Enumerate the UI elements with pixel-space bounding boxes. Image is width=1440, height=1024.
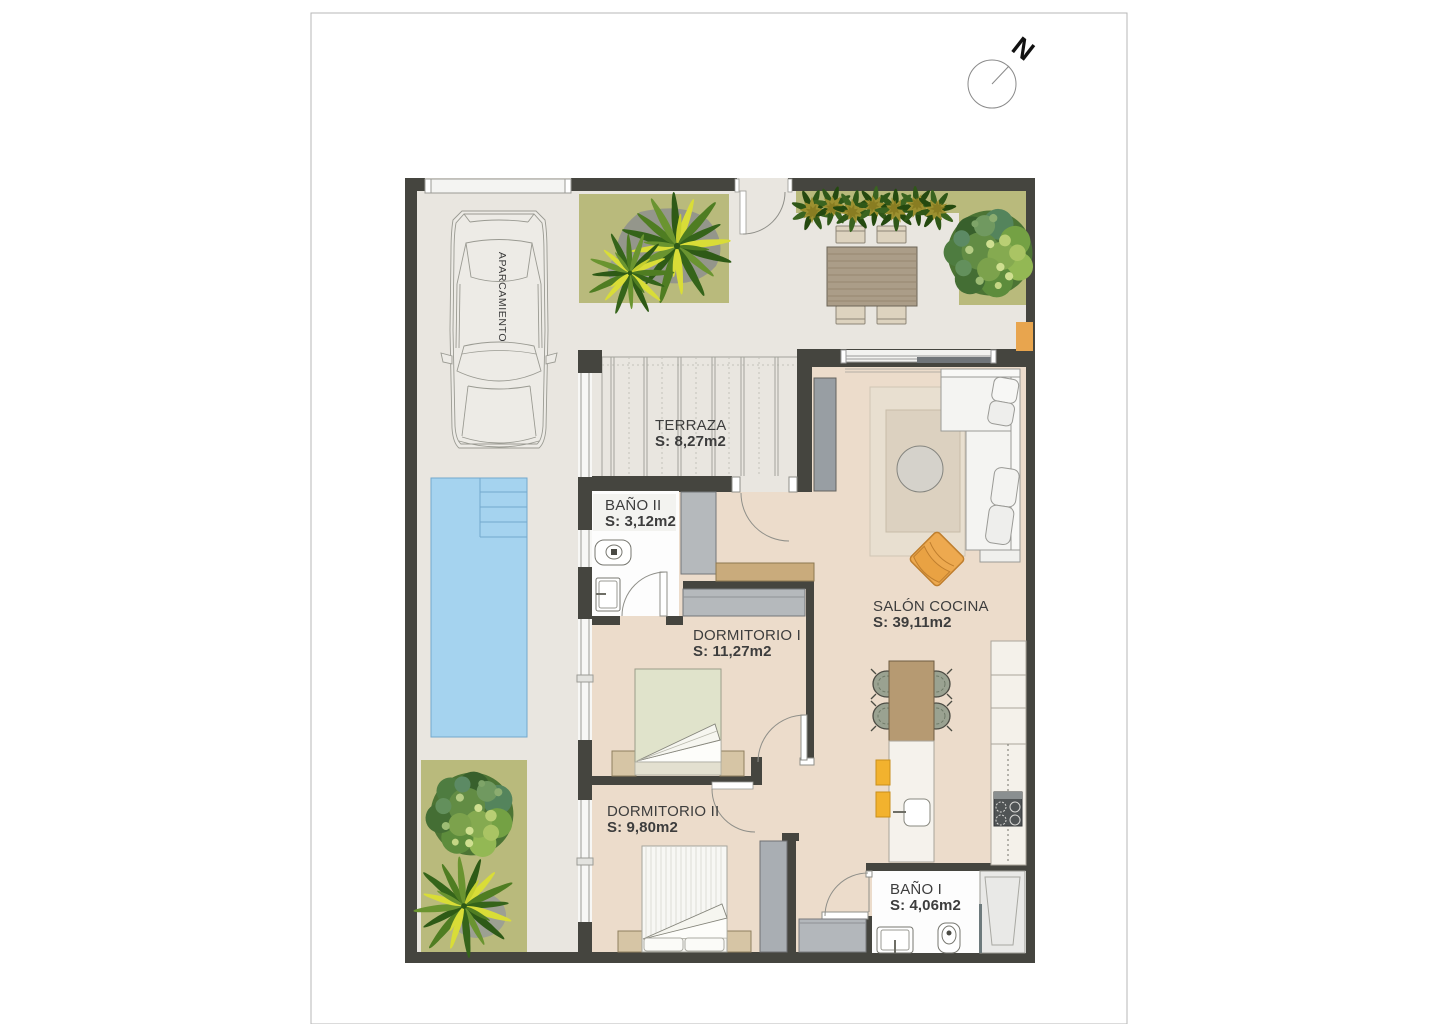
svg-text:S: 8,27m2: S: 8,27m2 [655,433,726,450]
svg-text:BAÑO I: BAÑO I [890,881,942,898]
svg-text:APARCAMIENTO: APARCAMIENTO [496,252,508,342]
svg-text:BAÑO II: BAÑO II [605,497,661,514]
svg-text:S: 4,06m2: S: 4,06m2 [890,897,961,914]
svg-text:S: 9,80m2: S: 9,80m2 [607,819,678,836]
svg-text:S: 39,11m2: S: 39,11m2 [873,614,952,631]
svg-text:S: 11,27m2: S: 11,27m2 [693,643,772,660]
svg-text:SALÓN COCINA: SALÓN COCINA [873,598,989,615]
svg-text:DORMITORIO I: DORMITORIO I [693,627,801,644]
svg-text:TERRAZA: TERRAZA [655,417,726,434]
svg-text:S: 3,12m2: S: 3,12m2 [605,513,676,530]
svg-text:DORMITORIO II: DORMITORIO II [607,803,719,820]
